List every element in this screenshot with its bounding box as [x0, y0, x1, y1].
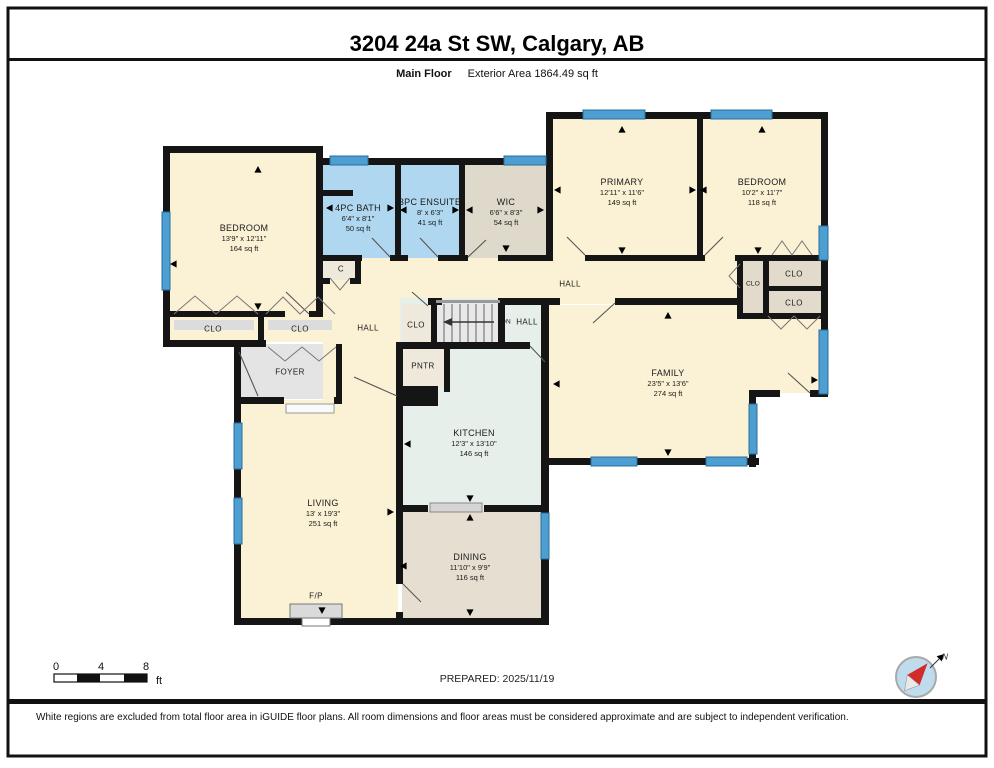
scale-unit: ft — [156, 675, 162, 687]
exterior-area-label: Exterior Area 1864.49 sq ft — [468, 68, 598, 80]
floor-label: Main Floor — [396, 68, 452, 80]
floor-subtitle: Main FloorExterior Area 1864.49 sq ft — [396, 68, 598, 80]
compass-icon — [896, 652, 946, 697]
room-label-wic: WIC 6'6" x 8'3" 54 sq ft — [490, 197, 523, 227]
fireplace-box — [290, 604, 342, 618]
scale-bar — [54, 674, 147, 682]
entry-step — [286, 404, 334, 413]
stairs-dn-label: DN — [501, 319, 511, 326]
clo-label-small: CLO — [746, 281, 760, 288]
clo-label-2: CLO — [291, 325, 309, 334]
footer-disclaimer: White regions are excluded from total fl… — [36, 712, 849, 723]
floor-plan-svg — [0, 0, 994, 768]
room-label-family: FAMILY 23'5" x 13'6" 274 sq ft — [647, 368, 688, 398]
closet-small — [741, 260, 765, 316]
floor-plan-screenshot: 3204 24a St SW, Calgary, AB Main FloorEx… — [0, 0, 994, 768]
scale-tick-0: 0 — [53, 661, 59, 673]
scale-tick-4: 4 — [98, 661, 104, 673]
scale-tick-8: 8 — [143, 661, 149, 673]
clo-label-stairs: CLO — [407, 321, 425, 330]
page-title: 3204 24a St SW, Calgary, AB — [350, 31, 645, 57]
foyer-label: FOYER — [275, 368, 305, 377]
fireplace-label: F/P — [309, 592, 323, 601]
hall-left-label: HALL — [357, 324, 379, 333]
prepared-date: PREPARED: 2025/11/19 — [440, 673, 555, 685]
clo-label-1: CLO — [204, 325, 222, 334]
room-label-ensuite: 3PC ENSUITE 8' x 6'3" 41 sq ft — [399, 197, 461, 227]
room-label-bedroom-right: BEDROOM 10'2" x 11'7" 118 sq ft — [738, 177, 787, 207]
hall-upper — [323, 258, 737, 304]
closet-c-label: C — [338, 265, 344, 274]
room-label-bedroom-left: BEDROOM 13'9" x 12'11" 164 sq ft — [220, 223, 269, 253]
room-label-bath: 4PC BATH 6'4" x 8'1" 50 sq ft — [335, 203, 381, 233]
clo-label-right-2: CLO — [785, 299, 803, 308]
kitchen-counter — [430, 503, 482, 512]
room-label-primary: PRIMARY 12'11" x 11'6" 149 sq ft — [600, 177, 644, 207]
room-label-dining: DINING 11'10" x 9'9" 116 sq ft — [450, 552, 491, 582]
hall-upper-label: HALL — [559, 280, 581, 289]
clo-label-right-1: CLO — [785, 270, 803, 279]
room-fills — [168, 119, 824, 620]
hall-stairs-label: HALL — [516, 318, 538, 327]
pantry-label: PNTR — [411, 362, 434, 371]
room-label-living: LIVING 13' x 19'3" 251 sq ft — [306, 498, 340, 528]
north-label: N — [942, 653, 948, 662]
room-label-kitchen: KITCHEN 12'3" x 13'10" 146 sq ft — [451, 428, 496, 458]
